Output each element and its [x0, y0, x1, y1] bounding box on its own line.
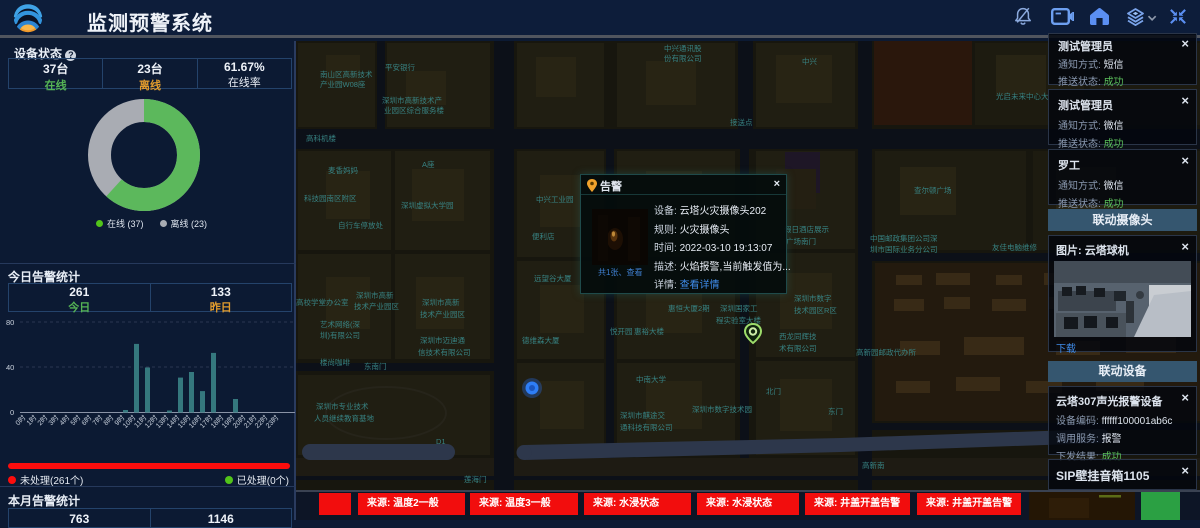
svg-text:高校学堂办公室: 高校学堂办公室	[296, 297, 349, 307]
svg-text:中兴工业园: 中兴工业园	[536, 194, 574, 204]
svg-text:6时: 6时	[79, 413, 93, 427]
svg-text:中兴: 中兴	[802, 56, 817, 66]
svg-text:5时: 5时	[68, 413, 82, 427]
svg-text:远望谷大厦: 远望谷大厦	[534, 273, 572, 283]
svg-text:人员继续教育基地: 人员继续教育基地	[314, 413, 374, 423]
svg-text:深圳市麒途交: 深圳市麒途交	[620, 410, 665, 420]
svg-text:高新园邮政代办所: 高新园邮政代办所	[856, 347, 916, 357]
svg-text:技术产业园区: 技术产业园区	[354, 301, 399, 311]
svg-text:平安银行: 平安银行	[385, 62, 415, 72]
svg-text:中国邮政集团公司深: 中国邮政集团公司深	[870, 233, 938, 243]
svg-text:3时: 3时	[46, 413, 60, 427]
svg-text:业园区综合服务楼: 业园区综合服务楼	[384, 105, 444, 115]
svg-text:光启未来中心大: 光启未来中心大	[996, 91, 1049, 101]
svg-text:深圳市专业技术: 深圳市专业技术	[316, 401, 369, 411]
svg-text:西龙同辉技: 西龙同辉技	[779, 331, 817, 341]
svg-text:0时: 0时	[13, 413, 27, 427]
svg-text:深圳虚拟大学园: 深圳虚拟大学园	[401, 200, 454, 210]
svg-text:份有限公司: 份有限公司	[664, 53, 702, 63]
svg-text:技术园区R区: 技术园区R区	[794, 305, 837, 315]
svg-text:友佳电脑维修: 友佳电脑维修	[992, 242, 1037, 252]
svg-text:楼尚咖啡: 楼尚咖啡	[320, 357, 350, 367]
svg-text:接送点: 接送点	[730, 117, 753, 127]
svg-text:高科机楼: 高科机楼	[306, 133, 336, 143]
svg-text:艺术网络(深: 艺术网络(深	[320, 319, 360, 329]
svg-text:深圳市迈迪通: 深圳市迈迪通	[420, 335, 465, 345]
svg-text:东南门: 东南门	[364, 361, 387, 371]
svg-text:D1: D1	[436, 437, 446, 446]
svg-text:假日酒店展示: 假日酒店展示	[784, 224, 829, 234]
svg-text:深圳市高新: 深圳市高新	[356, 290, 394, 300]
svg-text:北门: 北门	[766, 387, 781, 396]
svg-text:麦香妈妈: 麦香妈妈	[328, 165, 358, 175]
svg-text:深圳市高新技术产: 深圳市高新技术产	[382, 95, 442, 105]
svg-text:南山区高新技术: 南山区高新技术	[320, 69, 373, 79]
svg-text:便利店: 便利店	[532, 231, 555, 241]
svg-text:中南大学: 中南大学	[636, 374, 666, 384]
svg-text:7时: 7时	[90, 413, 104, 427]
svg-text:悦开园: 悦开园	[610, 326, 633, 336]
svg-text:技术产业园区: 技术产业园区	[420, 309, 465, 319]
svg-text:中兴通讯股: 中兴通讯股	[664, 43, 702, 53]
svg-text:圳市国际业务分公司: 圳市国际业务分公司	[870, 244, 938, 254]
svg-text:4时: 4时	[57, 413, 71, 427]
svg-text:产业园W08座: 产业园W08座	[320, 79, 366, 89]
svg-text:通科技有限公司: 通科技有限公司	[620, 422, 673, 432]
svg-text:0: 0	[10, 408, 14, 417]
svg-text:自行车停放处: 自行车停放处	[338, 220, 383, 230]
svg-text:莲海门: 莲海门	[464, 474, 487, 484]
svg-text:科技园南区附区: 科技园南区附区	[304, 193, 357, 203]
svg-text:惠恒大厦2期: 惠恒大厦2期	[668, 303, 710, 313]
svg-text:A座: A座	[422, 159, 435, 169]
svg-text:深圳市数字: 深圳市数字	[794, 293, 832, 303]
svg-text:高新南: 高新南	[862, 460, 885, 470]
svg-text:东门: 东门	[828, 406, 843, 416]
svg-text:2时: 2时	[35, 413, 49, 427]
svg-text:深圳市高新: 深圳市高新	[422, 297, 460, 307]
svg-text:8时: 8时	[101, 413, 115, 427]
svg-text:德维森大厦: 德维森大厦	[522, 335, 560, 345]
svg-text:查尔顿广场: 查尔顿广场	[914, 185, 952, 195]
svg-text:深圳国家工: 深圳国家工	[720, 303, 758, 313]
svg-text:术有限公司: 术有限公司	[779, 343, 817, 353]
svg-text:80: 80	[6, 318, 14, 327]
svg-text:深圳市数字技术园: 深圳市数字技术园	[692, 404, 752, 414]
svg-text:圳)有限公司: 圳)有限公司	[320, 330, 360, 340]
svg-text:40: 40	[6, 363, 14, 372]
svg-text:惠裕大楼: 惠裕大楼	[634, 326, 664, 336]
svg-text:信技术有限公司: 信技术有限公司	[418, 347, 471, 357]
svg-text:1时: 1时	[24, 413, 38, 427]
